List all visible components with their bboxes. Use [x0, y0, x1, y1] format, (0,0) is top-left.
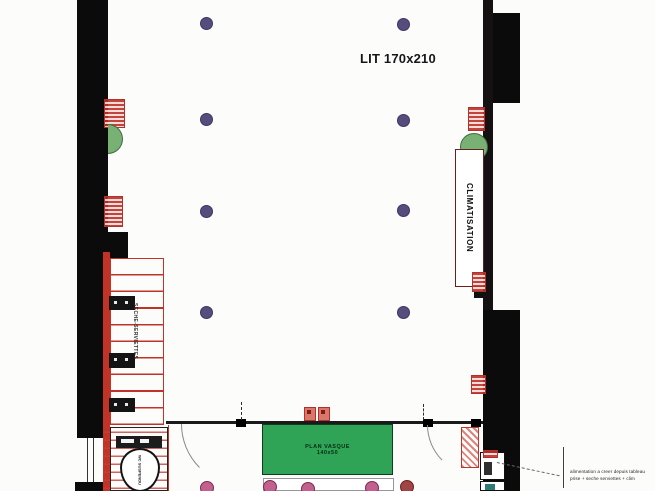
ceiling-spot-icon — [397, 114, 410, 127]
leader-tick — [563, 447, 564, 488]
ceiling-spot-icon — [200, 17, 213, 30]
valve-icon — [484, 462, 492, 475]
wc-cistern — [116, 436, 162, 448]
wc-toilet-bowl: WC SUSPENDU — [120, 448, 160, 491]
bathroom-spot-icon — [301, 482, 315, 491]
electrical-symbol-icon — [104, 196, 123, 227]
ceiling-spot-icon — [200, 306, 213, 319]
bathroom-spot-icon — [365, 481, 379, 491]
ceiling-spot-icon — [397, 204, 410, 217]
electrical-riser — [461, 427, 479, 468]
bathroom-spot-icon — [400, 480, 414, 491]
wall-right-pilaster — [493, 13, 520, 103]
ceiling-spot-icon — [397, 306, 410, 319]
power-socket-icon — [471, 375, 486, 394]
wc-label: WC SUSPENDU — [138, 455, 143, 485]
climatisation-unit-box: CLIMATISATION — [455, 149, 484, 287]
ceiling-spot-icon — [200, 113, 213, 126]
climatisation-label: CLIMATISATION — [465, 183, 474, 252]
vanity-unit: PLAN VASQUE 140x50 — [262, 424, 393, 475]
towel-rail-label: SECHE-SERVIETTES — [132, 303, 138, 421]
electrical-symbol-icon — [472, 272, 486, 292]
electrical-symbol-icon — [468, 107, 485, 131]
ac-unit-half-circle-icon — [108, 124, 123, 154]
annotation-line2: prise + seche serviettes + clim — [570, 475, 655, 482]
vanity-label-line2: 140x50 — [317, 450, 338, 456]
window-left — [87, 438, 94, 482]
door-axis-dashed-tick — [423, 404, 424, 420]
double-socket-icon — [304, 407, 330, 421]
floor-plan-canvas: LIT 170x210 CLIMATISATION SECHE-SERVIETT… — [0, 0, 655, 491]
door-swing-arc-left — [181, 424, 243, 486]
ceiling-spot-icon — [200, 205, 213, 218]
annotation-line1: alimentation a creer depuis tableau — [570, 468, 655, 475]
bathroom-spot-icon — [200, 481, 214, 491]
wall-inset-box — [480, 481, 505, 491]
bathroom-spot-icon — [263, 480, 277, 491]
door-axis-dashed-tick — [241, 402, 242, 420]
annotation-text: alimentation a creer depuis tableau pris… — [570, 468, 655, 482]
drain-icon — [485, 484, 495, 490]
wall-tick — [474, 292, 484, 298]
ceiling-spot-icon — [397, 18, 410, 31]
bed-size-label: LIT 170x210 — [360, 51, 470, 66]
electrical-symbol-icon — [483, 450, 498, 458]
